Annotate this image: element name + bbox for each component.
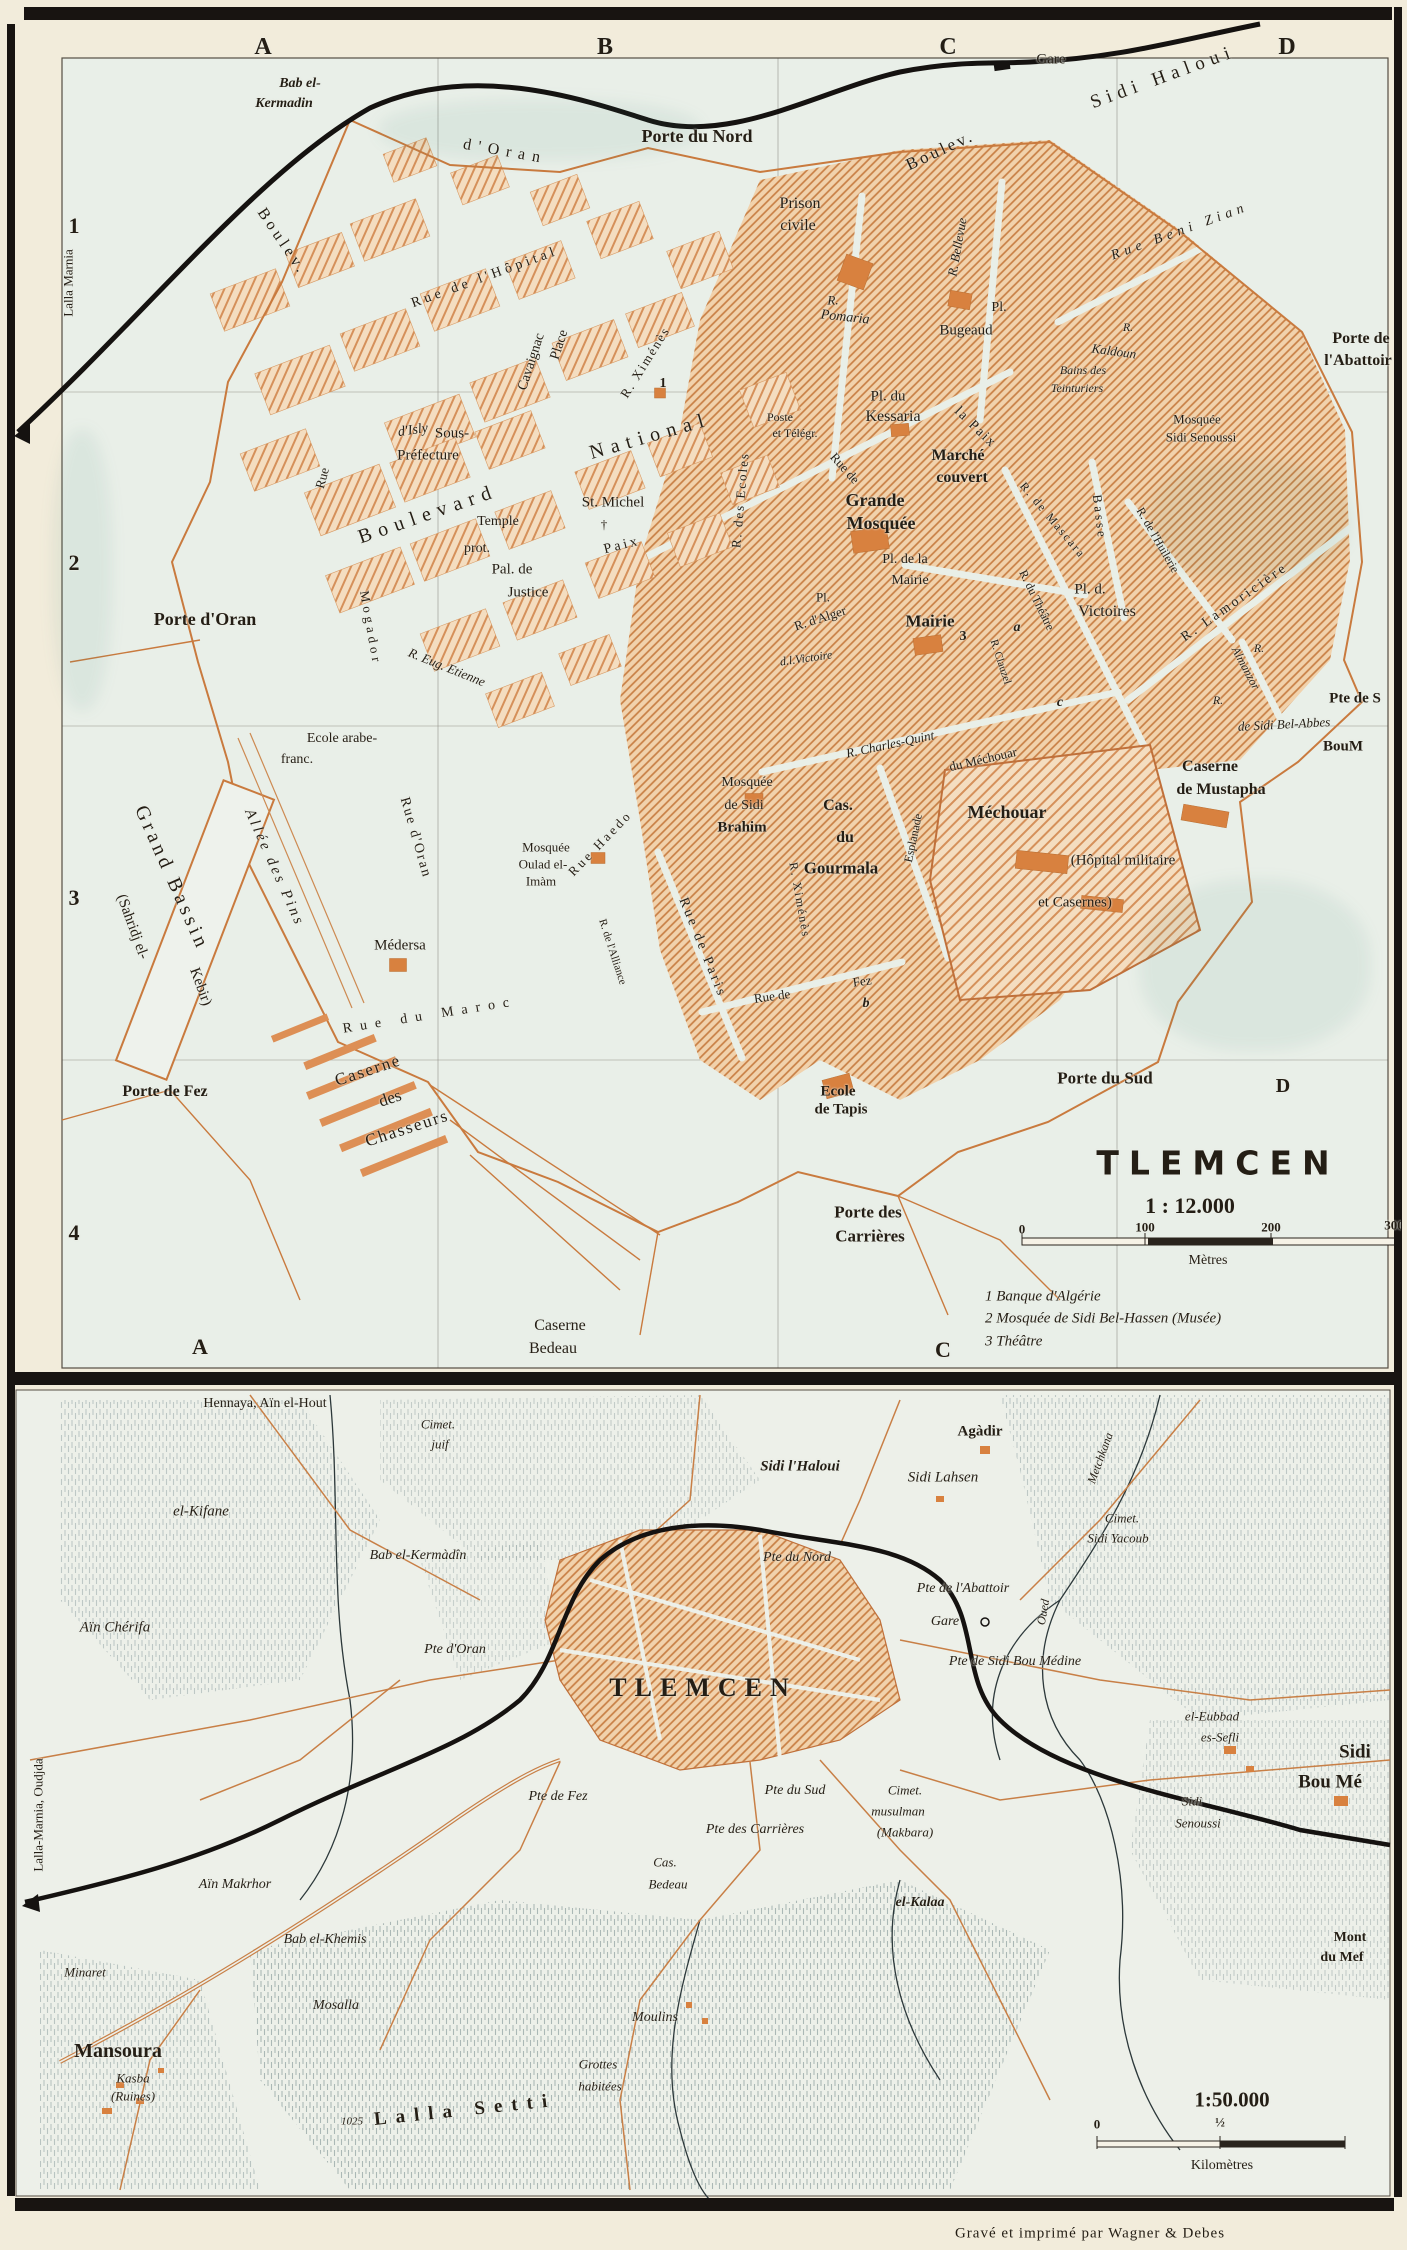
- map-label: Kessaria: [865, 409, 920, 425]
- map-label: Senoussi: [1175, 1817, 1221, 1830]
- map-label: Temple: [477, 515, 519, 529]
- map-label: Porte d'Oran: [154, 610, 256, 628]
- map-label: R. Clauzel: [988, 638, 1013, 686]
- scale-tick: ½: [1215, 2116, 1225, 2129]
- map-label: habitées: [578, 2080, 621, 2093]
- grid-letter: D: [1276, 1076, 1290, 1096]
- map-label: Grande: [845, 491, 904, 509]
- map-label: Sidi Yacoub: [1087, 1532, 1148, 1545]
- map-label: Oued: [1035, 1598, 1051, 1626]
- map-label: Pl. du: [870, 390, 905, 405]
- map-label: R. du Théâtre: [1017, 568, 1056, 632]
- map-label: Pte des Carrières: [706, 1823, 804, 1837]
- map-label: Pl.: [991, 301, 1006, 315]
- map-label: R. Eug. Etienne: [407, 646, 488, 689]
- map-label: Mairie: [891, 574, 928, 588]
- map-label: Pte de S: [1329, 692, 1381, 707]
- map-label: du Méchouar: [948, 745, 1018, 773]
- map-label: Sidi l'Haloui: [760, 1460, 840, 1475]
- map-label: Pte du Nord: [763, 1551, 831, 1565]
- grid-letter: A: [192, 1336, 208, 1358]
- map-label: Aïn Makrhor: [199, 1878, 271, 1892]
- map-label: d.l.Victoire: [779, 648, 833, 667]
- map-label: Rue: [313, 466, 331, 490]
- map-label: Pl. de la: [882, 553, 928, 567]
- map-label: Sidi Senoussi: [1166, 431, 1236, 444]
- map-label: Bab el-Khemis: [284, 1933, 367, 1947]
- map-label: R. de l'Alliance: [596, 918, 628, 986]
- map-label: Sidi: [1182, 1795, 1202, 1808]
- map-label: Lalla Marnia: [62, 249, 75, 317]
- map-label: Rue Haedo: [566, 808, 634, 878]
- map-label: Kebir): [186, 966, 213, 1008]
- map-label: Kaldoun: [1091, 341, 1137, 360]
- map-label: Boulev.: [254, 206, 310, 279]
- map-label: Caserne: [1182, 759, 1238, 775]
- grid-letter: D: [1278, 35, 1295, 59]
- map-label: c: [1057, 696, 1063, 710]
- map-label: R. des Ecoles: [729, 451, 750, 548]
- map-label: Esplanade: [902, 813, 924, 864]
- map-page: ABCD1234ACDLalla MarniaGareBab el-Kermad…: [0, 0, 1407, 2250]
- map-label: Rue de l'Hôpital: [410, 245, 561, 311]
- plan-scale: 1 : 12.000: [1145, 1195, 1235, 1217]
- map-label: Chasseurs: [363, 1106, 451, 1149]
- map-label: Pl.: [816, 591, 830, 604]
- map-label: juif: [431, 1438, 448, 1451]
- map-label: National: [587, 409, 713, 463]
- map-label: Bugeaud: [939, 324, 992, 339]
- map-label: R. de l'Huilerie: [1135, 505, 1182, 574]
- plan-title: TLEMCEN: [1096, 1147, 1339, 1180]
- map-label: musulman: [871, 1805, 924, 1818]
- map-label: Rue Beni Zian: [1109, 201, 1250, 264]
- map-label: Mogador: [358, 590, 384, 667]
- map-label: Porte des: [834, 1204, 902, 1221]
- map-label: Rue de: [753, 987, 791, 1005]
- environs-title: TLEMCEN: [609, 1675, 796, 1701]
- map-label: franc.: [281, 753, 313, 767]
- map-label: Bains des: [1060, 364, 1106, 376]
- map-label: Sidi Haloui: [1088, 42, 1238, 112]
- map-label: (Hôpital militaire: [1071, 854, 1176, 869]
- map-label: Sidi: [1339, 1743, 1371, 1762]
- map-label: Pte du Sud: [765, 1784, 826, 1798]
- map-label: Porte de: [1332, 331, 1389, 347]
- map-label: Mairie: [905, 613, 954, 630]
- map-label: Rue d'Oran: [397, 796, 433, 880]
- map-label: Méchouar: [968, 803, 1047, 821]
- map-label: Prison: [780, 196, 821, 212]
- map-label: Gare: [1036, 53, 1065, 68]
- map-label: Mosquée: [522, 841, 570, 854]
- map-label: Bedeau: [529, 1341, 577, 1357]
- map-label: Justice: [508, 586, 549, 601]
- map-label: de Sidi: [724, 799, 763, 813]
- map-label: a: [1014, 621, 1021, 635]
- map-label: Ecole: [821, 1085, 856, 1100]
- map-label: Bedeau: [649, 1878, 688, 1891]
- environs-scale-unit: Kilomètres: [1191, 2159, 1253, 2173]
- map-label: Minaret: [64, 1966, 105, 1979]
- map-label: R. Charles-Quint: [845, 728, 935, 759]
- map-label: Pomaria: [820, 308, 870, 327]
- map-label: Porte du Sud: [1057, 1070, 1152, 1087]
- map-label: R.: [1213, 694, 1223, 706]
- map-label: R. Lamoricière: [1179, 561, 1291, 645]
- map-label: Pal. de: [492, 563, 533, 578]
- map-label: Grand Bassin: [131, 803, 213, 954]
- map-label: Cimet.: [421, 1418, 455, 1431]
- scale-tick: 100: [1135, 1221, 1155, 1234]
- map-label: (Makbara): [877, 1826, 933, 1839]
- map-label: prot.: [464, 542, 490, 556]
- map-label: Rue de Paris: [676, 896, 729, 1000]
- map-label: Aïn Chérifa: [80, 1621, 150, 1636]
- map-label: el-Eubbad: [1185, 1710, 1239, 1723]
- map-label: Cas.: [653, 1856, 676, 1869]
- map-label: Rue de: [828, 450, 862, 486]
- map-label: Rue du Maroc: [342, 995, 518, 1036]
- map-label: Oulad el-: [519, 858, 568, 871]
- map-label: Allée des Pins: [241, 807, 306, 929]
- map-label: Sous-: [435, 427, 469, 442]
- map-label: Gourmala: [804, 860, 879, 877]
- map-label: Cimet.: [888, 1784, 922, 1797]
- map-label: Brahim: [717, 821, 766, 836]
- map-label: Bab el-Kermàdîn: [370, 1549, 467, 1563]
- map-label: R.: [1254, 642, 1264, 654]
- map-label: Bab el-: [279, 77, 321, 91]
- map-label: de Tapis: [815, 1103, 868, 1118]
- map-label: d'Isly: [397, 422, 429, 440]
- map-label: Moulins: [632, 2011, 678, 2025]
- map-label: es-Sefli: [1201, 1731, 1239, 1744]
- map-label: Gare: [931, 1615, 959, 1629]
- grid-letter: C: [935, 1339, 951, 1361]
- legend-marker-3: 3: [960, 630, 967, 644]
- map-label: Paix: [602, 535, 641, 558]
- map-label: Victoires: [1078, 604, 1136, 620]
- grid-number: 3: [69, 887, 80, 909]
- legend-entry: 2 Mosquée de Sidi Bel-Hassen (Musée): [985, 1312, 1221, 1327]
- map-label: Poste: [767, 411, 793, 423]
- map-label: Mosquée: [721, 776, 772, 790]
- map-label: Fez: [852, 973, 872, 988]
- map-label: Mosquée: [847, 514, 916, 532]
- map-label: Mont: [1334, 1931, 1367, 1945]
- map-label: Metchkana: [1085, 1431, 1115, 1485]
- map-label: el-Kifane: [173, 1505, 229, 1520]
- map-label: Place: [549, 328, 572, 361]
- grid-letter: A: [254, 35, 271, 59]
- scale-tick: 300: [1384, 1219, 1404, 1232]
- map-label: 1025: [341, 2117, 363, 2128]
- grid-letter: C: [939, 35, 956, 59]
- map-label: des: [377, 1086, 404, 1109]
- map-label: Mansoura: [74, 2041, 162, 2061]
- map-label: Pte de l'Abattoir: [917, 1582, 1009, 1596]
- map-label: Cimet.: [1105, 1512, 1139, 1525]
- grid-letter: B: [597, 35, 613, 59]
- map-label: Teinturiers: [1051, 382, 1103, 394]
- map-label: du: [836, 830, 854, 846]
- map-label: Kasba: [116, 2072, 149, 2085]
- map-label: Cavaignac: [516, 332, 548, 393]
- legend-marker-1: 1: [660, 377, 667, 391]
- map-label: l'Abattoir: [1324, 353, 1392, 369]
- map-label: Caserne: [333, 1051, 404, 1088]
- map-label: Ecole arabe-: [307, 732, 377, 746]
- legend-entry: 3 Théâtre: [985, 1335, 1042, 1350]
- map-label: Bou Mé: [1298, 1773, 1362, 1792]
- map-label: Basse: [1091, 494, 1109, 541]
- map-label: Porte du Nord: [642, 127, 753, 145]
- map-label: Carrières: [835, 1228, 905, 1245]
- map-label: St. Michel: [582, 496, 645, 511]
- map-label: Boulev.: [903, 127, 977, 173]
- map-label: R.: [1123, 321, 1133, 333]
- border-top: [24, 7, 1392, 20]
- map-label: Hennaya, Aïn el-Hout: [203, 1397, 326, 1411]
- map-label: de Mustapha: [1176, 782, 1265, 798]
- map-label: Agàdir: [958, 1425, 1003, 1440]
- map-label: civile: [780, 218, 816, 234]
- map-label: R.: [827, 294, 838, 307]
- map-label: et Casernes): [1038, 896, 1112, 911]
- map-label: Porte de Fez: [122, 1084, 207, 1100]
- map-label: la Paix: [951, 405, 998, 452]
- plan-scale-unit: Mètres: [1189, 1254, 1228, 1268]
- map-label: d'Oran: [462, 137, 548, 167]
- map-label: Pte de Fez: [528, 1790, 587, 1804]
- map-label: couvert: [936, 470, 988, 486]
- scale-tick: 0: [1019, 1223, 1026, 1236]
- map-label: Pl. d.: [1074, 583, 1105, 598]
- grid-number: 2: [69, 552, 80, 574]
- map-label: Sidi Lahsen: [908, 1471, 978, 1486]
- map-label: Préfecture: [397, 449, 459, 464]
- map-label: et Télégr.: [772, 427, 817, 439]
- map-label: de Sidi Bel-Abbes: [1238, 715, 1331, 733]
- map-label: Pte d'Oran: [424, 1643, 486, 1657]
- map-label: Médersa: [374, 939, 426, 954]
- map-label: BouM: [1323, 740, 1363, 755]
- map-label: Imàm: [526, 875, 556, 888]
- environs-scale: 1:50.000: [1194, 2090, 1269, 2111]
- map-label: Lalla-Marnia, Oudjda: [32, 1758, 45, 1871]
- map-label: R. de Mascara: [1018, 480, 1088, 560]
- map-label: Cas.: [823, 798, 853, 814]
- legend-entry: 1 Banque d'Algérie: [985, 1290, 1101, 1305]
- map-label: Mosquée: [1173, 413, 1221, 426]
- imprint: Gravé et imprimé par Wagner & Debes: [955, 2226, 1225, 2243]
- grid-number: 1: [69, 215, 80, 237]
- map-label: el-Kalaa: [896, 1896, 945, 1910]
- map-label: Kermadin: [255, 97, 313, 111]
- map-label: Marché: [931, 448, 984, 464]
- map-label: Lalla Setti: [373, 2091, 557, 2129]
- scale-tick: 0: [1094, 2118, 1101, 2131]
- grid-number: 4: [69, 1222, 80, 1244]
- map-label: Pte de Sidi Bou Médine: [949, 1655, 1081, 1669]
- map-label: R. Bellevue: [945, 217, 968, 278]
- map-label: (Sahridj el-: [113, 893, 150, 962]
- scale-tick: 200: [1261, 1221, 1281, 1234]
- map-label: R. d'Alger: [792, 604, 847, 633]
- map-label: Grottes: [579, 2058, 618, 2071]
- map-label: (Ruines): [111, 2090, 155, 2103]
- church-cross-icon: †: [601, 518, 608, 531]
- map-label: b: [863, 997, 870, 1011]
- map-label: Mosalla: [313, 1999, 359, 2013]
- map-label: Caserne: [534, 1318, 586, 1334]
- map-label: du Mef: [1320, 1951, 1363, 1965]
